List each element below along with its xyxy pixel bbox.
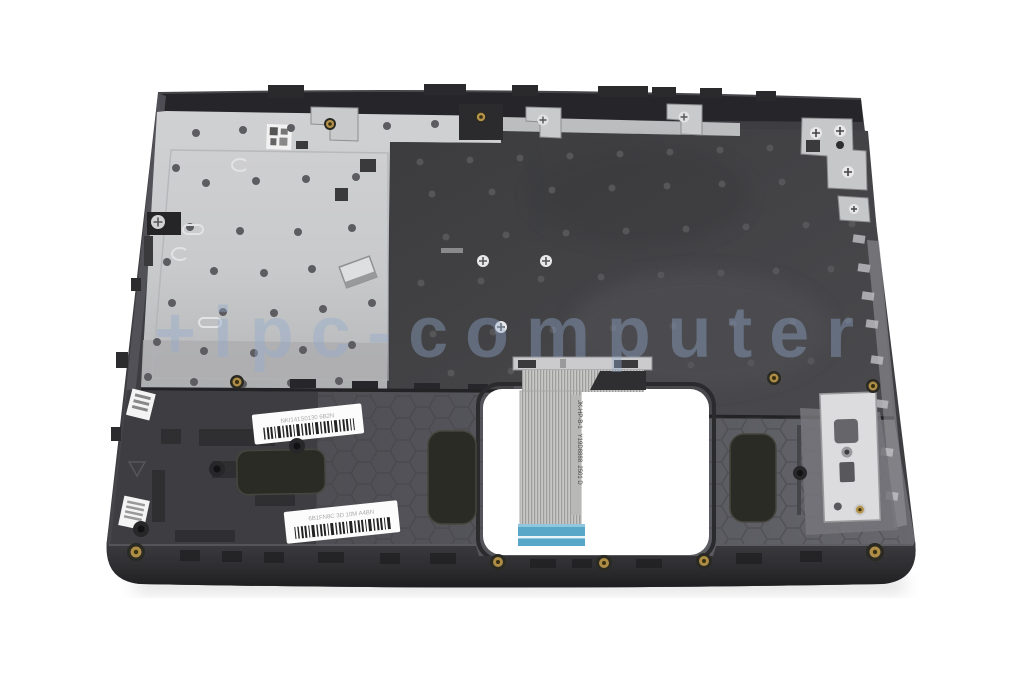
- svg-text:+ipc-computer: +ipc-computer: [154, 293, 854, 373]
- svg-text:JK-HP-B-1 Y19D8888 2501 D: JK-HP-B-1 Y19D8888 2501 D: [576, 400, 582, 485]
